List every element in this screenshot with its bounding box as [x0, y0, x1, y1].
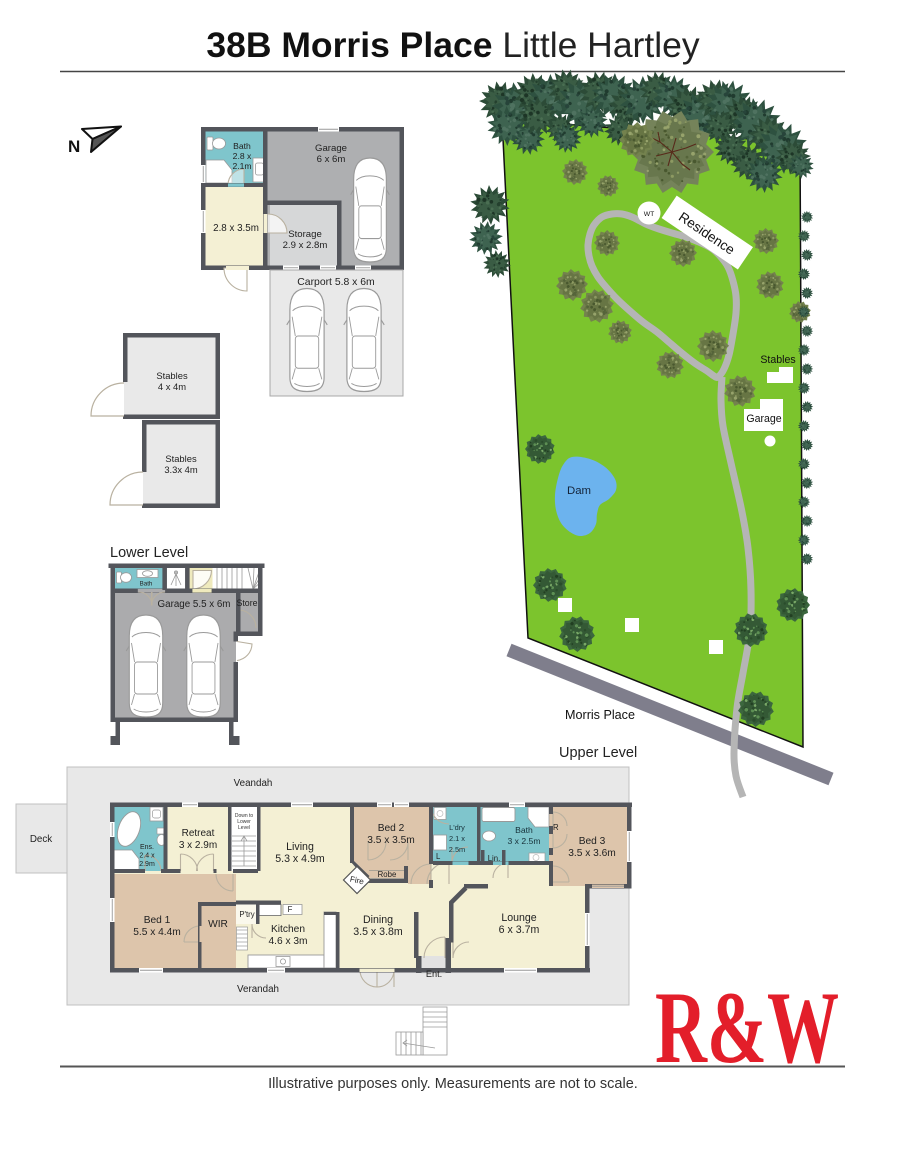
svg-text:2.1 x: 2.1 x [449, 834, 465, 843]
svg-text:Stables: Stables [165, 453, 197, 464]
svg-text:Bath: Bath [233, 141, 251, 151]
svg-text:Robe: Robe [378, 870, 397, 879]
svg-text:2.8 x: 2.8 x [233, 151, 252, 161]
svg-text:Bed 2: Bed 2 [378, 823, 405, 834]
svg-text:L'dry: L'dry [449, 823, 465, 832]
svg-text:2.8 x 3.5m: 2.8 x 3.5m [213, 223, 259, 234]
svg-text:Stables: Stables [760, 354, 795, 366]
svg-text:Bed 1: Bed 1 [144, 915, 171, 926]
svg-text:Garage: Garage [315, 143, 347, 154]
svg-text:Retreat: Retreat [182, 828, 215, 839]
svg-text:3.5 x 3.5m: 3.5 x 3.5m [367, 835, 415, 846]
svg-text:Ent.: Ent. [426, 969, 442, 979]
svg-text:P'try: P'try [239, 910, 254, 919]
svg-text:L: L [436, 852, 441, 861]
svg-text:Kitchen: Kitchen [271, 924, 305, 935]
svg-text:Deck: Deck [30, 834, 52, 845]
svg-text:6 x 6m: 6 x 6m [317, 154, 346, 165]
svg-text:6 x 3.7m: 6 x 3.7m [499, 924, 540, 936]
svg-text:Illustrative purposes only. Me: Illustrative purposes only. Measurements… [268, 1076, 638, 1092]
svg-text:Garage: Garage [746, 413, 781, 425]
svg-text:3 x 2.5m: 3 x 2.5m [508, 836, 541, 846]
svg-text:Stables: Stables [156, 370, 188, 381]
svg-text:2.4 x: 2.4 x [139, 853, 155, 860]
svg-text:Veandah: Veandah [234, 778, 273, 789]
svg-text:Garage 5.5 x 6m: Garage 5.5 x 6m [158, 599, 231, 610]
svg-text:3.5 x 3.8m: 3.5 x 3.8m [353, 926, 403, 938]
svg-text:Lin.: Lin. [488, 854, 501, 863]
svg-text:Lower Level: Lower Level [110, 545, 188, 561]
svg-text:R: R [553, 823, 559, 832]
svg-text:5.5 x 4.4m: 5.5 x 4.4m [133, 927, 181, 938]
svg-text:2.5m: 2.5m [449, 845, 465, 854]
svg-text:N: N [68, 137, 80, 156]
svg-text:Store: Store [236, 598, 257, 608]
svg-text:2.9 x 2.8m: 2.9 x 2.8m [283, 240, 328, 251]
svg-text:38B Morris Place Little Hartle: 38B Morris Place Little Hartley [206, 25, 700, 65]
svg-text:Level: Level [238, 825, 250, 831]
svg-text:2.9m: 2.9m [139, 861, 155, 868]
svg-text:Lounge: Lounge [501, 912, 536, 924]
svg-text:F: F [288, 905, 293, 914]
svg-text:Ens.: Ens. [140, 844, 154, 851]
svg-text:Bed 3: Bed 3 [579, 836, 606, 847]
svg-text:3 x 2.9m: 3 x 2.9m [179, 840, 217, 851]
svg-text:4 x 4m: 4 x 4m [158, 381, 186, 392]
svg-text:Upper Level: Upper Level [559, 745, 637, 761]
svg-text:Dam: Dam [567, 485, 591, 497]
svg-text:5.3 x 4.9m: 5.3 x 4.9m [275, 853, 325, 865]
svg-text:WIR: WIR [208, 919, 228, 930]
svg-text:Bath: Bath [515, 825, 533, 835]
svg-text:Bath: Bath [140, 581, 153, 588]
svg-text:Carport 5.8 x 6m: Carport 5.8 x 6m [297, 277, 374, 288]
svg-text:R&W: R&W [655, 971, 839, 1085]
svg-text:3.5 x 3.6m: 3.5 x 3.6m [568, 848, 616, 859]
svg-text:Living: Living [286, 841, 314, 853]
svg-text:4.6 x 3m: 4.6 x 3m [268, 936, 307, 947]
svg-text:Morris Place: Morris Place [565, 708, 635, 722]
svg-text:3.3x 4m: 3.3x 4m [164, 464, 198, 475]
svg-text:WT: WT [644, 211, 655, 218]
svg-text:Dining: Dining [363, 914, 393, 926]
svg-text:Verandah: Verandah [237, 984, 279, 995]
svg-text:2.1m: 2.1m [232, 161, 251, 171]
svg-text:Storage: Storage [288, 229, 322, 240]
